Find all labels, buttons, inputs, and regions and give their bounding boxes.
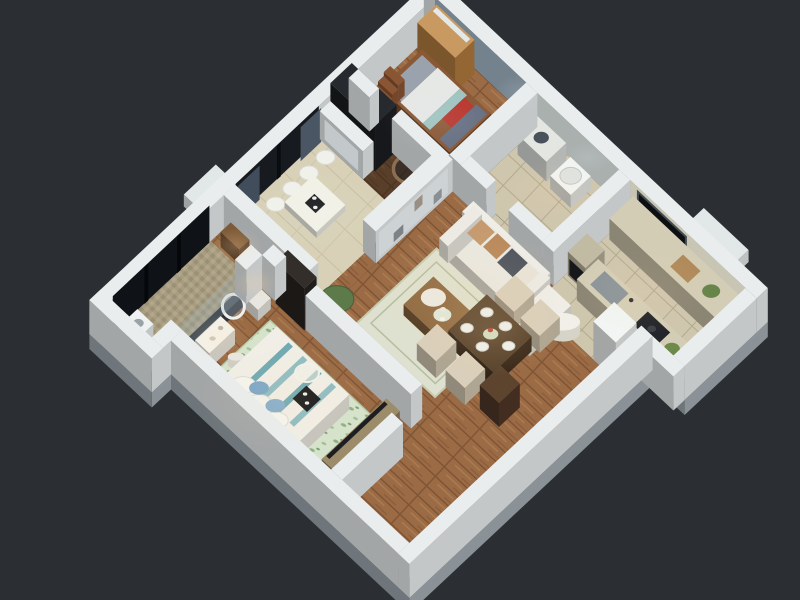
glow-vanity <box>186 314 254 362</box>
glow-wall-spot-2 <box>564 142 612 174</box>
tatami-window-mullion <box>277 142 281 180</box>
glow-kitchen <box>574 248 710 336</box>
floor-plan-svg <box>0 0 800 600</box>
glow-kids-room <box>382 84 498 156</box>
tatami-pillow-1 <box>316 150 335 164</box>
glow-nightstand <box>234 268 278 300</box>
glow-tatami <box>258 170 378 250</box>
glow-dining <box>422 287 562 377</box>
glow-corridor-lamp <box>210 228 262 264</box>
bath-vanity-decor <box>534 132 549 144</box>
balcony-window-mullion-2 <box>144 263 148 304</box>
glow-wall-spot-1 <box>494 74 546 110</box>
balcony-window-mullion-1 <box>177 233 181 274</box>
floor-plan-render <box>0 0 800 600</box>
